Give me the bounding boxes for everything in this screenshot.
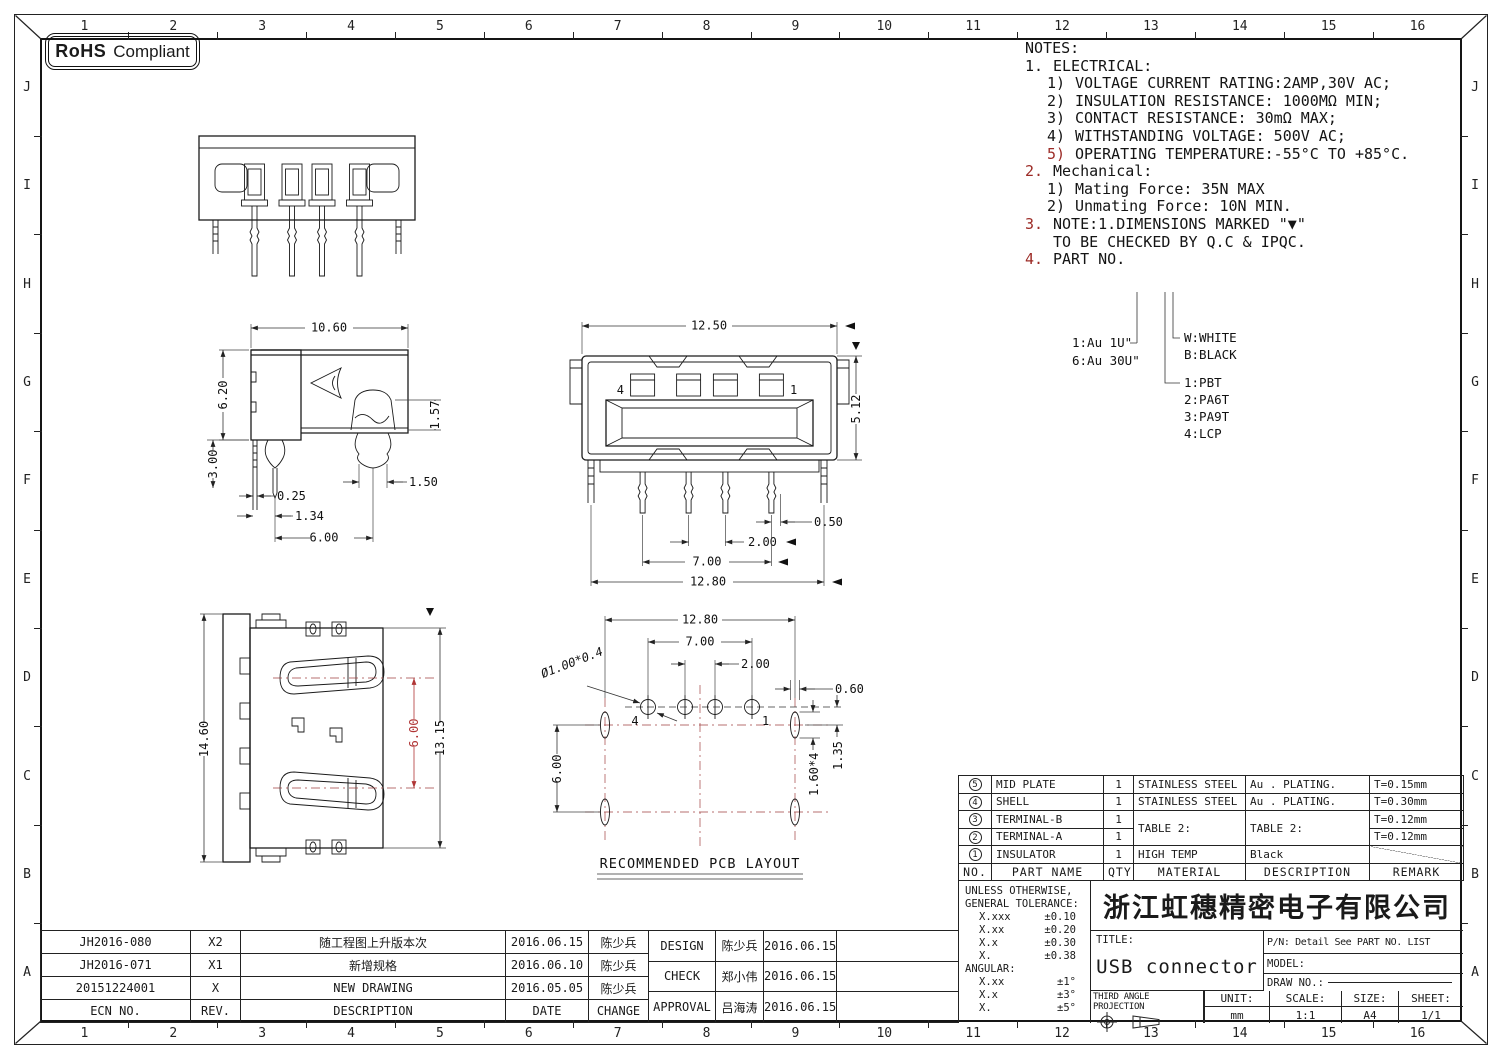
rev-date: 2016.06.10	[506, 954, 589, 977]
zone-row: G	[1462, 333, 1488, 431]
drawing-sheet: 12345678910111213141516 1234567891011121…	[0, 0, 1502, 1059]
dim-front-span: 7.00	[693, 555, 722, 569]
zone-row: H	[1462, 235, 1488, 333]
drawing-title-box: TITLE: USB connector	[1091, 931, 1264, 991]
projection-label: THIRD ANGLE PROJECTION	[1093, 992, 1201, 1012]
zone-row: C	[1462, 727, 1488, 825]
part-remark: T=0.30mm	[1370, 793, 1464, 811]
note-marker: 5)	[1047, 146, 1069, 164]
dim-front-height: 5.12	[849, 395, 863, 424]
zone-col: 6	[484, 14, 573, 38]
rev-description: 随工程图上升版本次	[241, 931, 506, 954]
part-no-badge: 5	[969, 778, 982, 791]
col-remark: REMARK	[1370, 863, 1464, 881]
note-text: CONTACT RESISTANCE: 30mΩ MAX;	[1075, 109, 1337, 127]
legend-plating-1: 1:Au 1U"	[1072, 335, 1132, 350]
draw-no-label: DRAW NO.:	[1267, 977, 1324, 989]
bottom-view-drawing: 14.60 13.15 6.00	[178, 598, 468, 888]
dim-side-peg-span: 6.00	[310, 531, 339, 545]
zone-col: 10	[840, 14, 929, 38]
zone-row: E	[1462, 530, 1488, 628]
zone-col: 16	[1373, 1022, 1462, 1045]
tol-key: X.	[979, 1002, 992, 1015]
part-remark: T=0.15mm	[1370, 776, 1464, 794]
notes-title: NOTES:	[1025, 40, 1461, 58]
rev-change: 陈少兵	[589, 977, 649, 1000]
part-description: Black	[1246, 846, 1370, 864]
dim-side-pin-offset: 1.34	[295, 509, 324, 523]
zone-col: 10	[840, 1022, 929, 1045]
rev-date: 2016.06.15	[506, 931, 589, 954]
dim-pcb-pitch: 2.00	[741, 657, 770, 671]
tol-key: X.x	[979, 937, 998, 950]
zone-col: 15	[1284, 1022, 1373, 1045]
approval-table: DESIGN 陈少兵 2016.06.15 CHECK 郑小伟 2016.06.…	[648, 930, 959, 1023]
zone-col: 5	[396, 14, 485, 38]
part-material: STAINLESS STEEL	[1134, 793, 1246, 811]
dim-pcb-offset: 1.35	[831, 741, 845, 770]
zone-col: 7	[573, 1022, 662, 1045]
note-marker: 4.	[1025, 251, 1047, 269]
zone-col: 11	[929, 14, 1018, 38]
company-name: 浙江虹穗精密电子有限公司	[1091, 881, 1463, 931]
tol-key: X.xxx	[979, 911, 1011, 924]
zone-row: D	[1462, 628, 1488, 726]
part-no-badge: 1	[969, 848, 982, 861]
zone-col: 7	[573, 14, 662, 38]
part-remark: T=0.12mm	[1370, 811, 1464, 829]
table-row: 3 TERMINAL-B 1 TABLE 2: TABLE 2: T=0.12m…	[959, 811, 1464, 829]
dim-side-pin-width: 0.25	[277, 489, 306, 503]
col-rev: REV.	[191, 1000, 241, 1023]
approval-role: APPROVAL	[649, 992, 716, 1023]
dim-side-pin-length: 3.00	[206, 450, 220, 479]
part-description: Au . PLATING.	[1246, 776, 1370, 794]
tol-key: X.xx	[979, 976, 1004, 989]
note-marker: 3)	[1047, 110, 1069, 128]
dim-front-d050: 0.50	[814, 515, 843, 529]
third-angle-projection-icon	[1093, 1012, 1173, 1032]
col-change: CHANGE	[589, 1000, 649, 1023]
zone-row: A	[1462, 924, 1488, 1022]
zone-band-bottom: 12345678910111213141516	[40, 1022, 1462, 1045]
front-pin1-label: 1	[790, 383, 797, 397]
front-pin4-label: 4	[617, 383, 624, 397]
zone-col: 14	[1195, 1022, 1284, 1045]
zone-col: 12	[1018, 14, 1107, 38]
zone-col: 11	[929, 1022, 1018, 1045]
zone-row: C	[14, 727, 40, 825]
zone-row: D	[14, 628, 40, 726]
model-label: MODEL:	[1264, 954, 1463, 974]
draw-no-blank-line	[1328, 982, 1452, 983]
table-row: JH2016-080 X2 随工程图上升版本次 2016.06.15 陈少兵	[41, 931, 649, 954]
legend-material-2: 2:PA6T	[1184, 392, 1230, 407]
zone-band-top: 12345678910111213141516	[40, 14, 1462, 38]
legend-material-3: 3:PA9T	[1184, 409, 1230, 424]
tol-val: ±5°	[1057, 1002, 1076, 1015]
size-label: SIZE:	[1341, 991, 1398, 1007]
rohs-badge: RoHSCompliant	[45, 33, 200, 70]
col-material: MATERIAL	[1134, 863, 1246, 881]
table-row: APPROVAL 吕海涛 2016.06.15	[649, 992, 959, 1023]
rev-date: 2016.05.05	[506, 977, 589, 1000]
note-marker: 1.	[1025, 58, 1047, 76]
dim-pcb-slot-span: 6.00	[550, 755, 564, 784]
sheet-value: 1/1	[1398, 1007, 1463, 1023]
rev-rev: X2	[191, 931, 241, 954]
revision-table-header: ECN NO. REV. DESCRIPTION DATE CHANGE	[41, 1000, 649, 1023]
dim-pcb-hole-callout: Ø1.00*0.4	[539, 644, 605, 680]
part-qty: 1	[1104, 811, 1134, 829]
zone-col: 4	[307, 14, 396, 38]
tol-val: ±0.10	[1044, 911, 1076, 924]
zone-row: J	[14, 38, 40, 136]
note-marker: 2)	[1047, 93, 1069, 111]
part-number-legend: 1:Au 1U" 6:Au 30U" W:WHITE B:BLACK 1:PBT…	[1068, 286, 1293, 451]
legend-color-black: B:BLACK	[1184, 347, 1237, 362]
part-description: Au . PLATING.	[1246, 793, 1370, 811]
legend-plating-6: 6:Au 30U"	[1072, 353, 1140, 368]
table-row: 1 INSULATOR 1 HIGH TEMP Black	[959, 846, 1464, 864]
dim-pcb-slot-length: 1.60*4	[807, 753, 821, 796]
approval-date: 2016.06.15	[764, 992, 837, 1023]
dim-front-width: 12.50	[691, 319, 727, 333]
zone-col: 9	[751, 1022, 840, 1045]
note-marker: 4)	[1047, 128, 1069, 146]
part-qty: 1	[1104, 846, 1134, 864]
table-row: 4 SHELL 1 STAINLESS STEEL Au . PLATING. …	[959, 793, 1464, 811]
zone-band-left: JIHGFEDCBA	[14, 38, 40, 1022]
col-part-name: PART NAME	[992, 863, 1104, 881]
pcb-layout-title: RECOMMENDED PCB LAYOUT	[600, 856, 801, 872]
note-marker: 2.	[1025, 163, 1047, 181]
col-ecn: ECN NO.	[41, 1000, 191, 1023]
tol-val: ±0.38	[1044, 950, 1076, 963]
approval-role: DESIGN	[649, 931, 716, 962]
zone-col: 13	[1107, 14, 1196, 38]
note-text: PART NO.	[1053, 250, 1125, 268]
pcb-pin4-label: 4	[631, 714, 638, 728]
dim-side-peg-width: 1.50	[409, 475, 438, 489]
dim-pcb-slot-width: 0.60	[835, 682, 864, 696]
part-name: SHELL	[992, 793, 1104, 811]
unit-label: UNIT:	[1204, 991, 1269, 1007]
approval-date: 2016.06.15	[764, 931, 837, 962]
note-marker: 1)	[1047, 181, 1069, 199]
rev-description: 新增规格	[241, 954, 506, 977]
col-description: DESCRIPTION	[241, 1000, 506, 1023]
rev-ecn: JH2016-080	[41, 931, 191, 954]
scale-value: 1:1	[1269, 1007, 1341, 1023]
legend-color-white: W:WHITE	[1184, 330, 1237, 345]
rev-change: 陈少兵	[589, 931, 649, 954]
col-qty: QTY	[1104, 863, 1134, 881]
zone-row: J	[1462, 38, 1488, 136]
side-view-drawing: 10.60 6.20 1.57 3.00 1.50 0.25 1.34 6.00	[183, 298, 468, 568]
sheet-label: SHEET:	[1398, 991, 1463, 1007]
rev-rev: X	[191, 977, 241, 1000]
title-value: USB connector	[1096, 956, 1258, 978]
note-marker: 3.	[1025, 216, 1047, 234]
approval-role: CHECK	[649, 961, 716, 992]
part-no-badge: 3	[969, 813, 982, 826]
zone-row: I	[14, 136, 40, 234]
rohs-normal-text: Compliant	[113, 42, 190, 62]
parts-table: 5 MID PLATE 1 STAINLESS STEEL Au . PLATI…	[958, 775, 1464, 881]
dim-side-peg-height: 1.57	[428, 401, 442, 430]
front-view-drawing: 4 1 12.50 5.12 0.50 2.00	[552, 298, 867, 593]
dim-bottom-body-height: 13.15	[433, 720, 447, 756]
approval-blank	[837, 931, 959, 962]
dim-side-width: 10.60	[311, 321, 347, 335]
tol-val: ±1°	[1057, 976, 1076, 989]
note-text: ELECTRICAL:	[1053, 57, 1152, 75]
part-remark: T=0.12mm	[1370, 828, 1464, 846]
revision-table: JH2016-080 X2 随工程图上升版本次 2016.06.15 陈少兵 J…	[40, 930, 649, 1023]
note-text: TO BE CHECKED BY Q.C & IPQC.	[1053, 233, 1306, 251]
col-no: NO.	[959, 863, 992, 881]
col-description: DESCRIPTION	[1246, 863, 1370, 881]
tol-key: X.xx	[979, 924, 1004, 937]
dim-pcb-total: 12.80	[682, 613, 718, 627]
rev-ecn: JH2016-071	[41, 954, 191, 977]
tol-val: ±0.20	[1044, 924, 1076, 937]
part-qty: 1	[1104, 828, 1134, 846]
note-text: WITHSTANDING VOLTAGE: 500V AC;	[1075, 127, 1346, 145]
note-text: INSULATION RESISTANCE: 1000MΩ MIN;	[1075, 92, 1382, 110]
legend-material-1: 1:PBT	[1184, 375, 1222, 390]
zone-row: H	[14, 235, 40, 333]
pcb-pin1-label: 1	[762, 714, 769, 728]
note-marker: 2)	[1047, 198, 1069, 216]
table-row: 5 MID PLATE 1 STAINLESS STEEL Au . PLATI…	[959, 776, 1464, 794]
dim-front-pitch: 2.00	[748, 535, 777, 549]
zone-row: A	[14, 924, 40, 1022]
rev-rev: X1	[191, 954, 241, 977]
part-material: HIGH TEMP	[1134, 846, 1246, 864]
zone-col: 8	[662, 1022, 751, 1045]
dim-bottom-contact-span: 6.00	[407, 719, 421, 748]
approval-name: 郑小伟	[716, 961, 764, 992]
dim-pcb-span: 7.00	[686, 635, 715, 649]
tolerance-line2: GENERAL TOLERANCE:	[965, 898, 1084, 911]
approval-blank	[837, 992, 959, 1023]
dim-bottom-height: 14.60	[197, 721, 211, 757]
note-text: OPERATING TEMPERATURE:-55°C TO +85°C.	[1075, 145, 1409, 163]
zone-col: 4	[307, 1022, 396, 1045]
note-text: VOLTAGE CURRENT RATING:2AMP,30V AC;	[1075, 74, 1391, 92]
zone-col: 3	[218, 14, 307, 38]
approval-blank	[837, 961, 959, 992]
note-text: NOTE:1.DIMENSIONS MARKED "▼"	[1053, 215, 1306, 233]
title-block: UNLESS OTHERWISE, GENERAL TOLERANCE: X.x…	[958, 880, 1462, 1022]
scale-label: SCALE:	[1269, 991, 1341, 1007]
part-qty: 1	[1104, 793, 1134, 811]
rev-description: NEW DRAWING	[241, 977, 506, 1000]
note-text: Mating Force: 35N MAX	[1075, 180, 1265, 198]
dim-side-height: 6.20	[216, 381, 230, 410]
part-number-note: P/N: Detail See PART NO. LIST	[1264, 931, 1463, 954]
rev-change: 陈少兵	[589, 954, 649, 977]
tol-key: X.x	[979, 989, 998, 1002]
parts-table-header: NO. PART NAME QTY MATERIAL DESCRIPTION R…	[959, 863, 1464, 881]
tolerance-block: UNLESS OTHERWISE, GENERAL TOLERANCE: X.x…	[959, 881, 1091, 1023]
zone-col: 15	[1284, 14, 1373, 38]
approval-date: 2016.06.15	[764, 961, 837, 992]
table-row: JH2016-071 X1 新增规格 2016.06.10 陈少兵	[41, 954, 649, 977]
zone-col: 1	[40, 1022, 129, 1045]
zone-row: G	[14, 333, 40, 431]
zone-row: E	[14, 530, 40, 628]
table-row: 20151224001 X NEW DRAWING 2016.05.05 陈少兵	[41, 977, 649, 1000]
approval-name: 陈少兵	[716, 931, 764, 962]
draw-no-row: DRAW NO.:	[1264, 974, 1463, 991]
unit-value: mm	[1204, 1007, 1269, 1023]
legend-material-4: 4:LCP	[1184, 426, 1222, 441]
part-name: TERMINAL-B	[992, 811, 1104, 829]
zone-col: 14	[1195, 14, 1284, 38]
rohs-bold-text: RoHS	[55, 41, 106, 62]
notes-block: NOTES: 1.ELECTRICAL: 1)VOLTAGE CURRENT R…	[1025, 40, 1461, 269]
note-marker: 1)	[1047, 75, 1069, 93]
part-remark	[1370, 846, 1464, 864]
dim-front-total: 12.80	[690, 575, 726, 589]
tol-val: ±0.30	[1044, 937, 1076, 950]
approval-name: 吕海涛	[716, 992, 764, 1023]
note-text: Unmating Force: 10N MIN.	[1075, 197, 1292, 215]
col-date: DATE	[506, 1000, 589, 1023]
zone-row: I	[1462, 136, 1488, 234]
table-row: CHECK 郑小伟 2016.06.15	[649, 961, 959, 992]
part-name: MID PLATE	[992, 776, 1104, 794]
part-material: TABLE 2:	[1134, 811, 1246, 846]
size-value: A4	[1341, 1007, 1398, 1023]
zone-row: F	[14, 432, 40, 530]
zone-col: 8	[662, 14, 751, 38]
note-text: Mechanical:	[1053, 162, 1152, 180]
part-material: STAINLESS STEEL	[1134, 776, 1246, 794]
zone-col: 5	[396, 1022, 485, 1045]
zone-row: B	[1462, 825, 1488, 923]
zone-band-right: JIHGFEDCBA	[1462, 38, 1488, 1022]
zone-col: 3	[218, 1022, 307, 1045]
zone-col: 9	[751, 14, 840, 38]
zone-col: 2	[129, 1022, 218, 1045]
pcb-layout-drawing: 4 1 12.80 7.00 2.00 0.60 Ø1.00*0.4 6.00 …	[525, 600, 880, 890]
projection-box: THIRD ANGLE PROJECTION	[1091, 991, 1204, 1023]
part-description: TABLE 2:	[1246, 811, 1370, 846]
zone-row: B	[14, 825, 40, 923]
tol-key: X.	[979, 950, 992, 963]
rev-ecn: 20151224001	[41, 977, 191, 1000]
tol-val: ±3°	[1057, 989, 1076, 1002]
title-label: TITLE:	[1096, 934, 1258, 946]
table-row: DESIGN 陈少兵 2016.06.15	[649, 931, 959, 962]
part-name: TERMINAL-A	[992, 828, 1104, 846]
rear-view-drawing	[193, 128, 421, 286]
part-no-badge: 4	[969, 796, 982, 809]
zone-row: F	[1462, 432, 1488, 530]
zone-col: 16	[1373, 14, 1462, 38]
tolerance-line1: UNLESS OTHERWISE,	[965, 885, 1084, 898]
meta-grid: UNIT: SCALE: SIZE: SHEET: mm 1:1 A4 1/1	[1204, 991, 1463, 1023]
zone-col: 6	[484, 1022, 573, 1045]
part-name: INSULATOR	[992, 846, 1104, 864]
angular-label: ANGULAR:	[965, 963, 1084, 976]
part-qty: 1	[1104, 776, 1134, 794]
part-no-badge: 2	[969, 831, 982, 844]
